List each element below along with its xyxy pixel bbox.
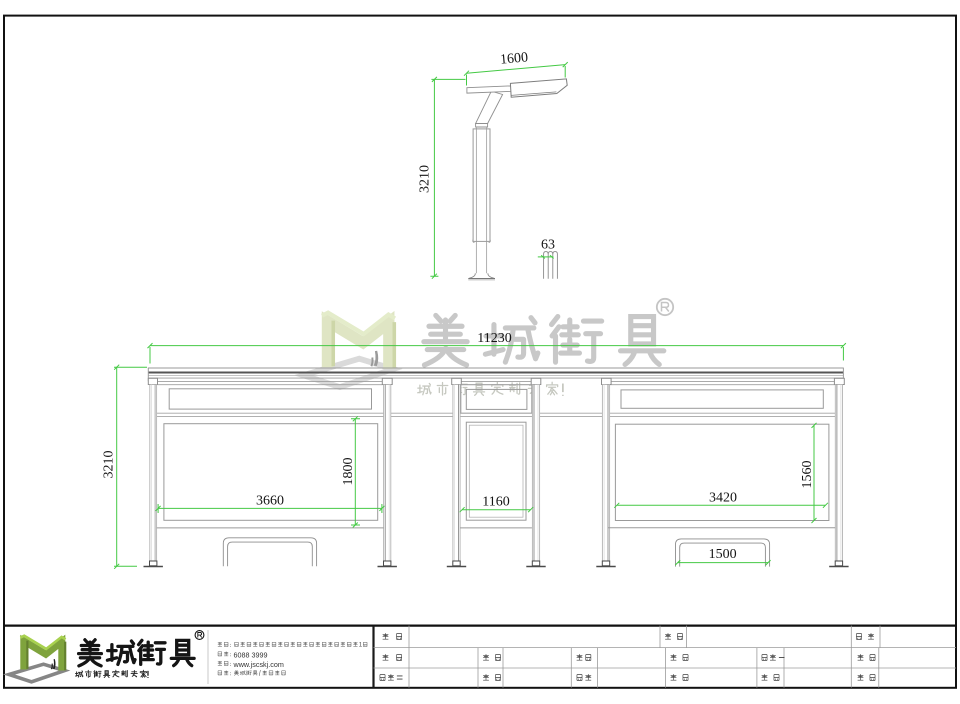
- svg-text:1160: 1160: [482, 494, 509, 509]
- svg-text:3210: 3210: [102, 451, 117, 479]
- svg-text:1560: 1560: [800, 461, 815, 489]
- svg-text:63: 63: [541, 238, 555, 253]
- svg-text:1800: 1800: [341, 458, 356, 486]
- svg-text:11230: 11230: [477, 331, 511, 346]
- svg-text:3210: 3210: [418, 165, 433, 193]
- svg-text:3660: 3660: [256, 494, 284, 509]
- svg-text:6088 3999: 6088 3999: [234, 650, 268, 659]
- svg-text:3420: 3420: [709, 490, 737, 505]
- svg-text:1600: 1600: [499, 50, 528, 67]
- svg-text:www.jscskj.com: www.jscskj.com: [233, 660, 284, 669]
- svg-text:1500: 1500: [709, 547, 737, 562]
